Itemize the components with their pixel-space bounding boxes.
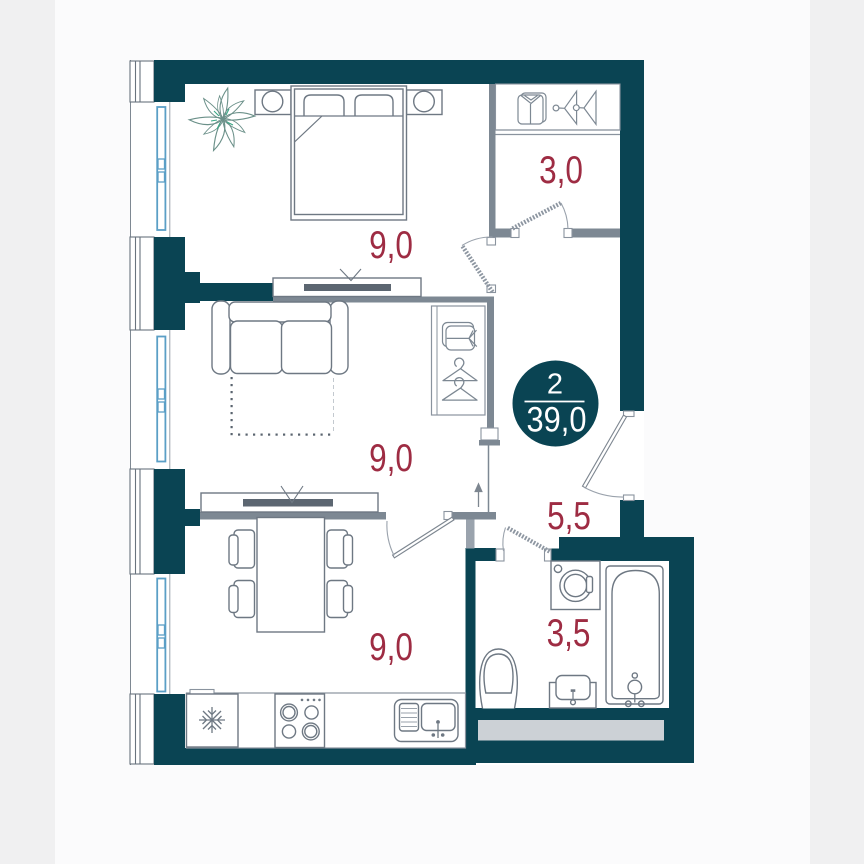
svg-text:5,5: 5,5	[547, 495, 591, 538]
svg-text:3,0: 3,0	[539, 149, 583, 192]
svg-text:9,0: 9,0	[369, 437, 413, 480]
svg-text:9,0: 9,0	[369, 626, 413, 669]
svg-text:9,0: 9,0	[369, 224, 413, 267]
svg-text:39,0: 39,0	[527, 400, 587, 439]
svg-text:2: 2	[547, 369, 563, 401]
svg-text:3,5: 3,5	[547, 612, 591, 655]
